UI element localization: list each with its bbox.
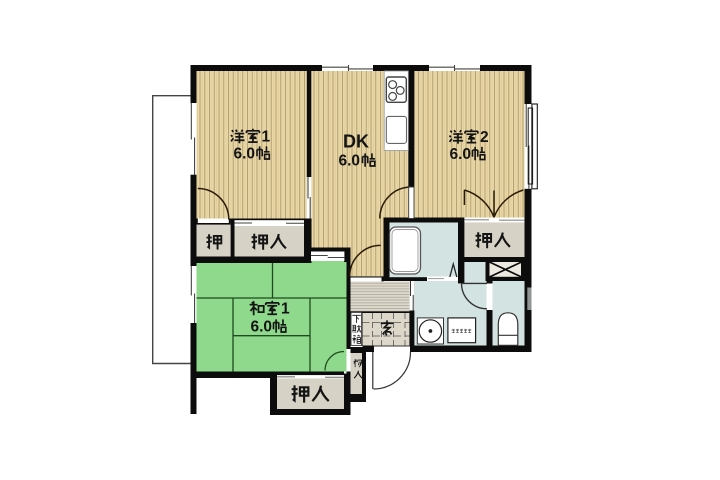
svg-text:1: 1 <box>281 301 290 318</box>
svg-text:2: 2 <box>480 129 489 146</box>
svg-text:6.0: 6.0 <box>450 146 472 163</box>
svg-text:6.0: 6.0 <box>234 146 256 163</box>
svg-text:1: 1 <box>262 129 271 146</box>
svg-text:DK: DK <box>343 132 369 152</box>
svg-text:6.0: 6.0 <box>251 319 273 336</box>
svg-text:6.0: 6.0 <box>339 153 361 170</box>
